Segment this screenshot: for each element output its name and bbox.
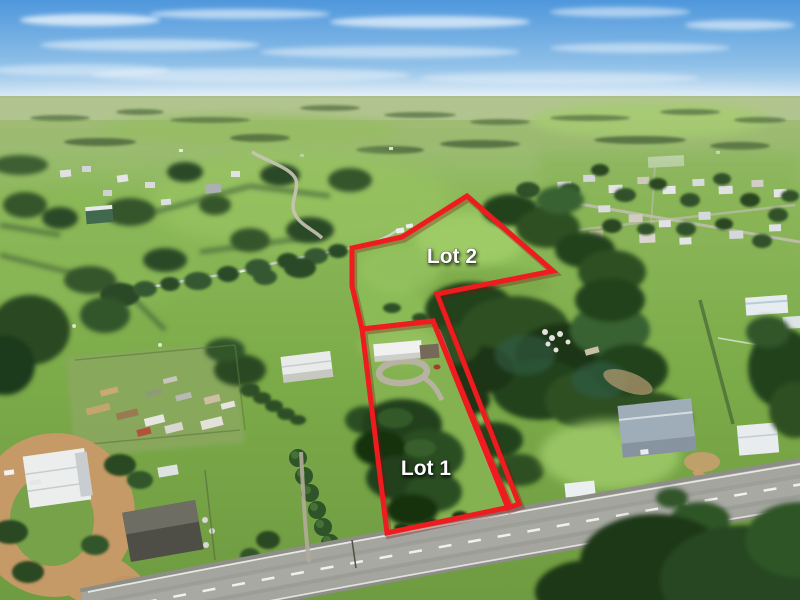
aerial-photo-stage: Lot 2 Lot 1 bbox=[0, 0, 800, 600]
aerial-photo: Lot 2 Lot 1 bbox=[0, 0, 800, 600]
lot-1-label: Lot 1 bbox=[401, 457, 451, 480]
homestead-house bbox=[23, 448, 94, 508]
grey-roof-house bbox=[617, 398, 696, 457]
white-house-right bbox=[737, 422, 779, 455]
red-car bbox=[434, 365, 441, 370]
lot-2-label: Lot 2 bbox=[427, 245, 477, 268]
